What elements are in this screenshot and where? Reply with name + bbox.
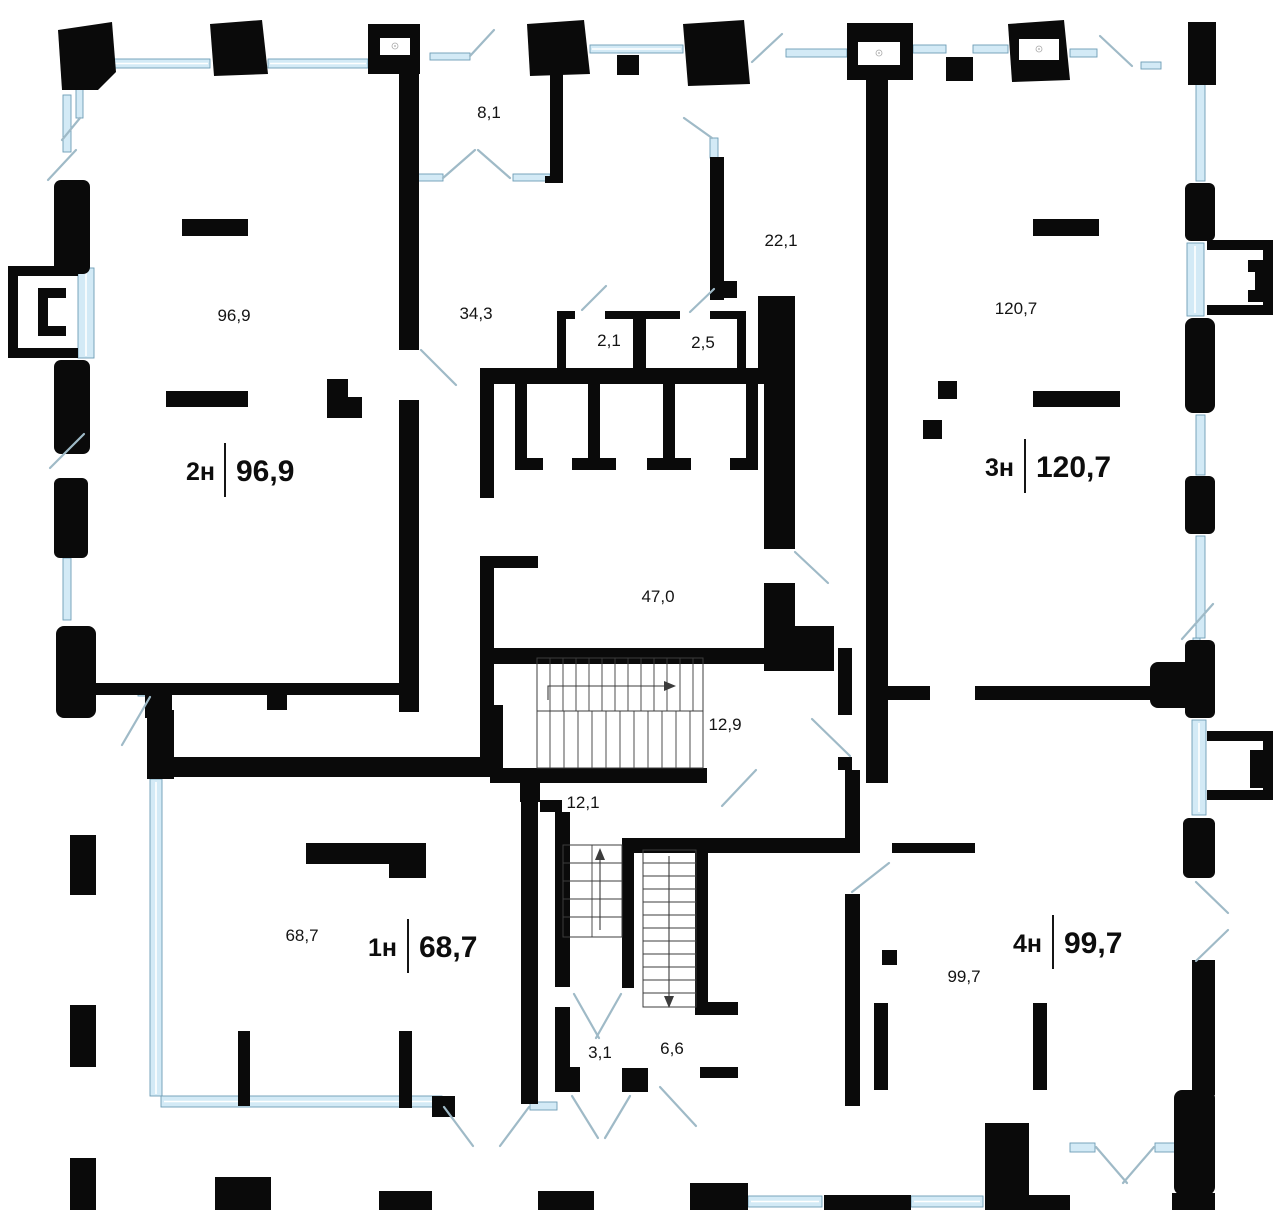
room-area-label-4n: 99,7	[947, 967, 980, 986]
room-area-label-6-6: 6,6	[660, 1039, 684, 1058]
stair-exit-lower	[643, 850, 696, 1008]
stair-direction-arrow	[548, 686, 664, 700]
room-area-label-3n: 120,7	[995, 299, 1038, 318]
room-area-label-22-1: 22,1	[764, 231, 797, 250]
door-leaf	[1141, 62, 1161, 69]
door-swings	[48, 30, 1228, 1183]
unit-number: 1н	[368, 934, 397, 962]
unit-number: 2н	[186, 458, 215, 486]
unit-area: 68,7	[419, 931, 477, 964]
labels: 96,9 34,3 8,1 22,1 120,7 2,1 2,5 47,0 12…	[186, 103, 1122, 1062]
room-area-label-3-1: 3,1	[588, 1043, 612, 1062]
room-area-label-2-1: 2,1	[597, 331, 621, 350]
floor-plan-page: 96,9 34,3 8,1 22,1 120,7 2,1 2,5 47,0 12…	[0, 0, 1280, 1210]
door-leaf	[430, 53, 470, 60]
unit-area: 96,9	[236, 455, 294, 488]
unit-label-3n: 3н 120,7	[985, 439, 1111, 493]
room-area-label-2n: 96,9	[217, 306, 250, 325]
room-area-label-12-9: 12,9	[708, 715, 741, 734]
room-area-label-34-3: 34,3	[459, 304, 492, 323]
floor-plan-canvas: 96,9 34,3 8,1 22,1 120,7 2,1 2,5 47,0 12…	[0, 0, 1280, 1210]
unit-area: 99,7	[1064, 927, 1122, 960]
unit-label-2n: 2н 96,9	[186, 443, 294, 497]
exterior-walls	[8, 20, 1273, 1210]
door-leaf	[1070, 1143, 1095, 1152]
room-area-label-2-5: 2,5	[691, 333, 715, 352]
unit-number: 4н	[1013, 930, 1042, 958]
room-area-label-47-0: 47,0	[641, 587, 674, 606]
room-area-label-8-1: 8,1	[477, 103, 501, 122]
room-area-label-12-1: 12,1	[566, 793, 599, 812]
unit-number: 3н	[985, 454, 1014, 482]
stair-exit-upper	[563, 845, 622, 937]
unit-label-1n: 1н 68,7	[368, 919, 477, 973]
unit-label-4n: 4н 99,7	[1013, 915, 1122, 969]
interior-walls	[80, 72, 1194, 1195]
door-leaf	[513, 174, 550, 181]
stair-main	[537, 658, 703, 768]
room-area-label-1n: 68,7	[285, 926, 318, 945]
unit-area: 120,7	[1036, 451, 1111, 484]
door-leaf	[710, 138, 718, 158]
